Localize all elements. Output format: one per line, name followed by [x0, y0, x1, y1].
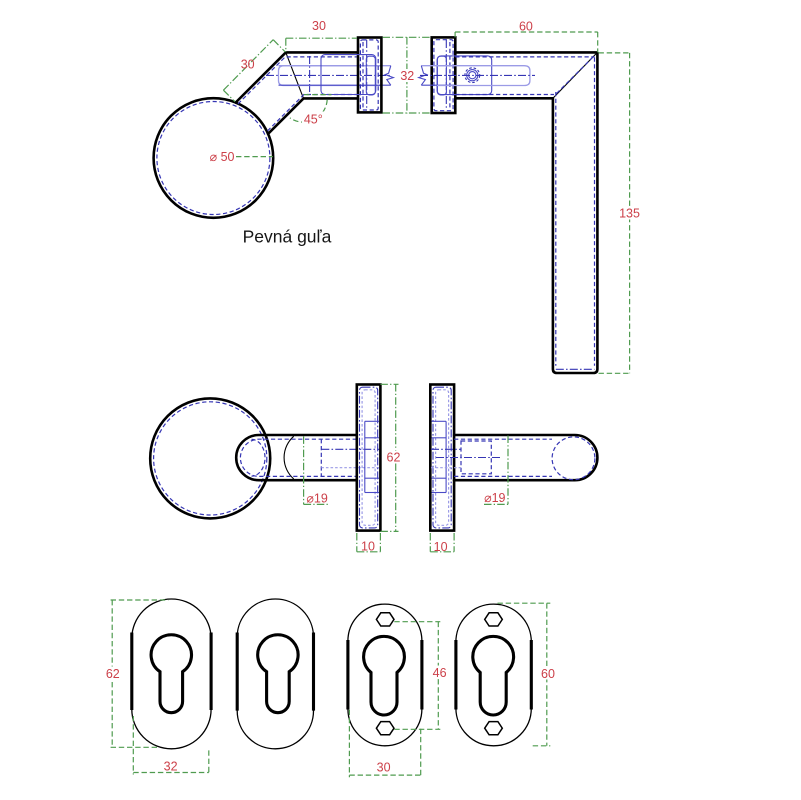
svg-text:135: 135 — [619, 207, 640, 221]
svg-text:60: 60 — [541, 667, 555, 681]
svg-text:30: 30 — [241, 58, 255, 72]
svg-text:62: 62 — [106, 667, 120, 681]
svg-text:46: 46 — [433, 666, 447, 680]
svg-text:30: 30 — [312, 19, 326, 33]
svg-text:60: 60 — [519, 20, 533, 34]
svg-text:32: 32 — [164, 759, 178, 773]
svg-text:⌀19: ⌀19 — [484, 491, 505, 505]
svg-text:45°: 45° — [304, 112, 323, 126]
svg-text:Pevná guľa: Pevná guľa — [243, 227, 332, 247]
svg-text:62: 62 — [387, 451, 401, 465]
svg-text:32: 32 — [400, 69, 414, 83]
svg-text:30: 30 — [377, 761, 391, 775]
svg-text:10: 10 — [434, 540, 448, 554]
svg-text:10: 10 — [361, 540, 375, 554]
svg-text:⌀ 50: ⌀ 50 — [210, 150, 235, 164]
svg-text:⌀19: ⌀19 — [306, 492, 327, 506]
